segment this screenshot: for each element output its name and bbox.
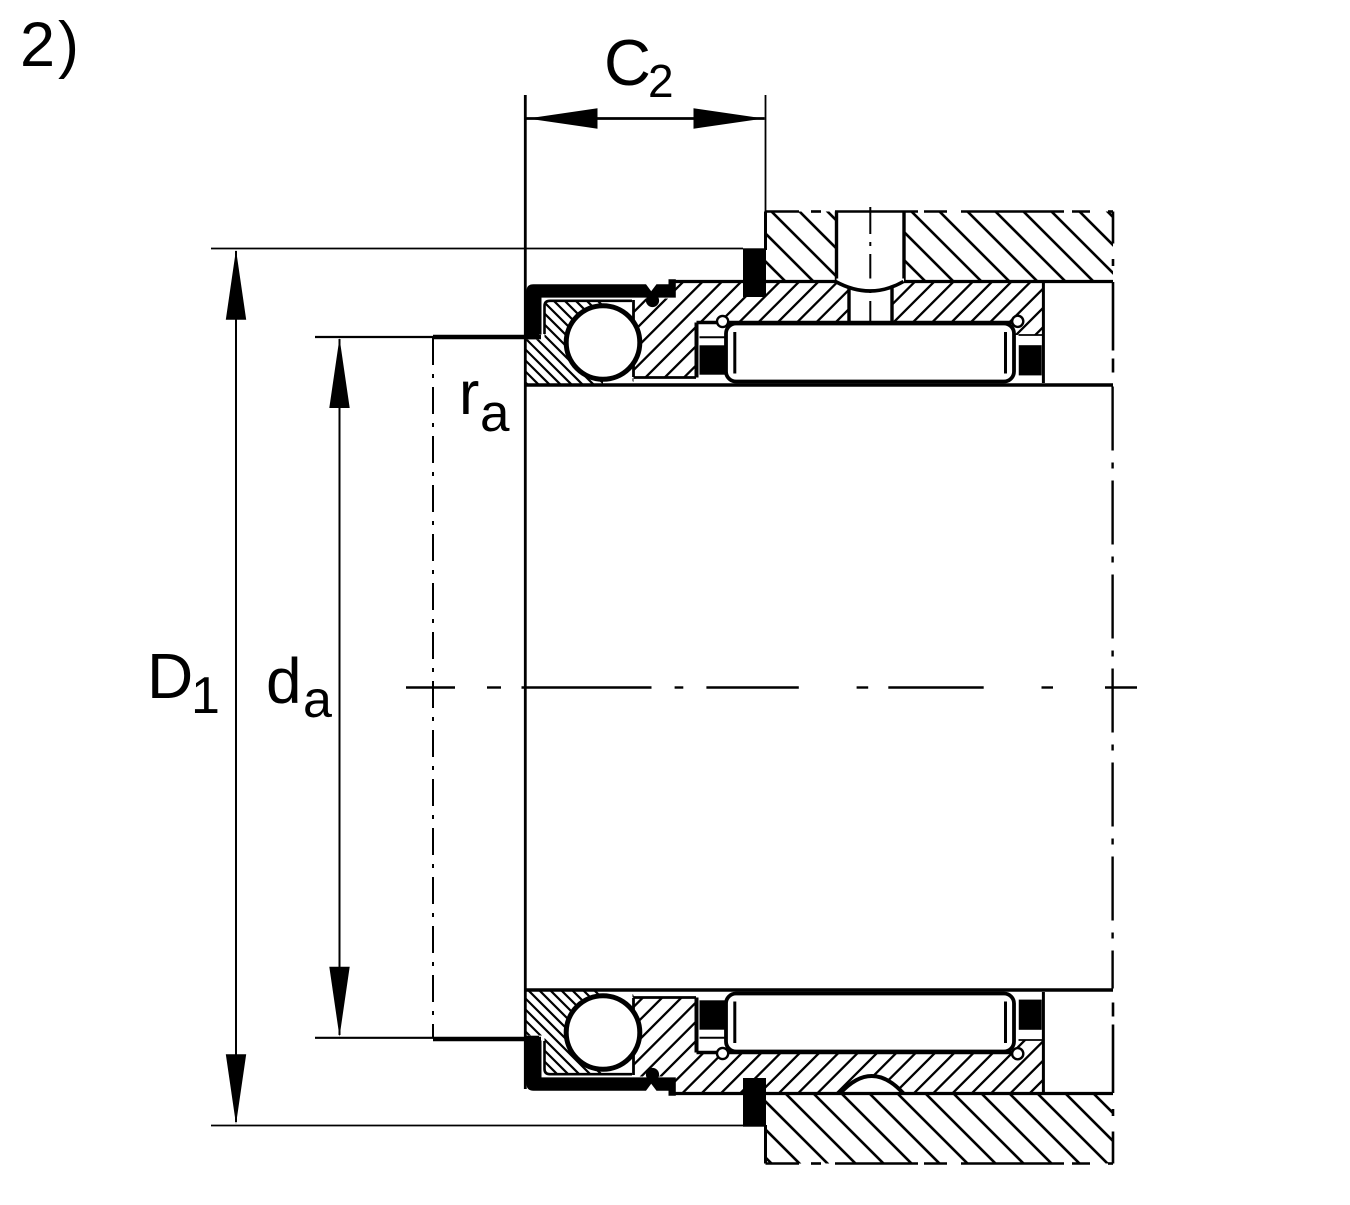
svg-text:1: 1	[191, 667, 220, 725]
svg-text:d: d	[266, 645, 302, 717]
svg-text:a: a	[480, 384, 510, 443]
svg-text:2): 2)	[20, 10, 82, 80]
svg-text:D: D	[147, 640, 193, 712]
svg-text:C: C	[604, 26, 651, 99]
svg-text:a: a	[303, 671, 332, 729]
svg-text:r: r	[459, 359, 479, 427]
svg-text:2: 2	[648, 55, 674, 107]
